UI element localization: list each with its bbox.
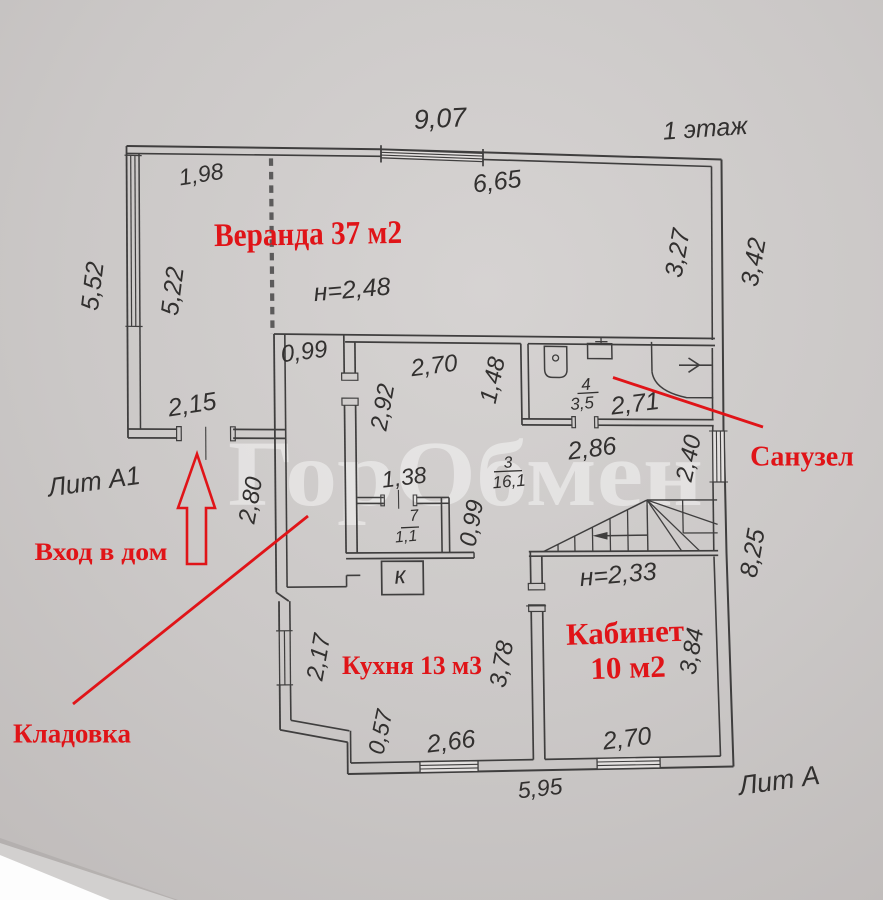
svg-text:1,1: 1,1 [394,528,418,547]
svg-text:Вход в дом: Вход в дом [35,539,168,566]
svg-text:4: 4 [580,375,591,395]
svg-text:Санузел: Санузел [750,441,854,472]
svg-text:0,99: 0,99 [279,336,329,368]
svg-text:Кладовка: Кладовка [13,718,131,748]
svg-text:16,1: 16,1 [492,471,527,493]
svg-text:3,5: 3,5 [569,393,595,414]
svg-text:1,38: 1,38 [380,461,428,492]
svg-text:9,07: 9,07 [413,102,468,135]
svg-text:Кухня 13 м3: Кухня 13 м3 [342,651,482,680]
svg-text:5,22: 5,22 [156,265,190,317]
svg-text:5,95: 5,95 [516,773,563,804]
svg-text:5,52: 5,52 [76,260,110,312]
svg-text:Веранда 37 м2: Веранда 37 м2 [214,215,403,254]
svg-text:Кабинет: Кабинет [565,613,684,652]
svg-text:10 м2: 10 м2 [590,649,667,687]
svg-text:3: 3 [503,454,513,472]
svg-text:6,65: 6,65 [471,165,523,199]
